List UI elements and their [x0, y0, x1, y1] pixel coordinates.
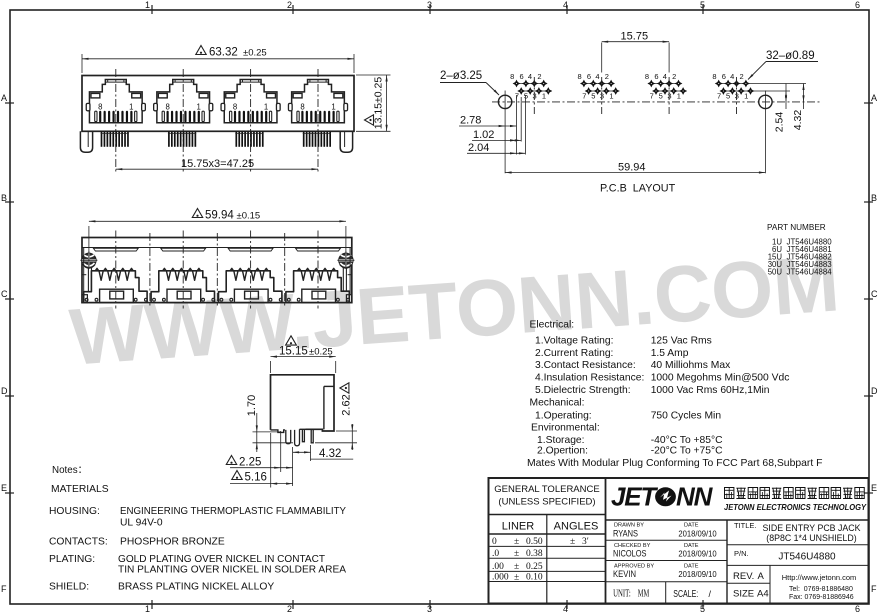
svg-text:(UNLESS SPECIFIED): (UNLESS SPECIFIED) — [498, 497, 595, 508]
svg-text:PHOSPHOR BRONZE: PHOSPHOR BRONZE — [120, 537, 225, 548]
svg-text:1: 1 — [129, 103, 133, 112]
svg-text:1.Voltage Rating:: 1.Voltage Rating: — [535, 335, 613, 346]
svg-text:SHIELD:: SHIELD: — [49, 582, 89, 593]
svg-text:ANGLES: ANGLES — [554, 521, 599, 533]
svg-text:7: 7 — [515, 91, 519, 100]
svg-text:59.94: 59.94 — [618, 161, 646, 173]
svg-text:C: C — [871, 289, 878, 299]
svg-text:SIZE: SIZE — [733, 589, 754, 600]
svg-text:6: 6 — [520, 72, 524, 81]
svg-text:A: A — [1, 93, 7, 103]
svg-text:Mechanical:: Mechanical: — [530, 398, 585, 409]
svg-text:8: 8 — [645, 72, 649, 81]
svg-text:Electrical:: Electrical: — [530, 320, 575, 331]
svg-text:PLATING:: PLATING: — [49, 554, 95, 565]
svg-text:5: 5 — [659, 91, 663, 100]
svg-text:RYANS: RYANS — [613, 528, 638, 538]
svg-text:0.50: 0.50 — [526, 537, 543, 547]
svg-text:3.Contact Resistance:: 3.Contact Resistance: — [535, 360, 636, 371]
svg-text:F: F — [1, 584, 7, 594]
svg-text:BRASS PLATING NICKEL ALLOY: BRASS PLATING NICKEL ALLOY — [118, 582, 274, 593]
svg-text:JT546U4884: JT546U4884 — [787, 268, 833, 277]
svg-text:±: ± — [514, 549, 519, 559]
svg-text:1: 1 — [197, 103, 201, 112]
svg-text:4.32: 4.32 — [792, 110, 804, 131]
svg-text:PART NUMBER: PART NUMBER — [767, 223, 826, 232]
svg-text:8: 8 — [578, 72, 582, 81]
svg-text:5.16: 5.16 — [245, 471, 267, 483]
svg-text:1: 1 — [145, 0, 150, 10]
svg-text:JET: JET — [611, 482, 658, 512]
svg-text:5: 5 — [726, 91, 730, 100]
svg-text:±: ± — [514, 537, 519, 547]
svg-text:59.94: 59.94 — [205, 209, 234, 221]
svg-text:8: 8 — [98, 103, 102, 112]
svg-text:ENGINEERING THERMOPLASTIC FLAM: ENGINEERING THERMOPLASTIC FLAMMABILITY — [120, 506, 346, 517]
svg-text:4: 4 — [663, 72, 667, 81]
svg-text:3′: 3′ — [582, 537, 589, 547]
svg-text:TIN PLANTING OVER NICKEL IN SO: TIN PLANTING OVER NICKEL IN SOLDER AREA — [118, 565, 346, 576]
svg-text:1000 Vac Rms 60Hz,1Min: 1000 Vac Rms 60Hz,1Min — [651, 385, 770, 396]
svg-text:4: 4 — [595, 72, 599, 81]
svg-text:Environmental:: Environmental: — [531, 423, 600, 434]
svg-text:2.Current Rating:: 2.Current Rating: — [535, 348, 613, 359]
svg-text:1: 1 — [609, 91, 613, 100]
svg-text:-20°C To +75°C: -20°C To +75°C — [651, 445, 723, 456]
svg-text:2: 2 — [287, 0, 292, 10]
svg-text:4.Insulation Resistance:: 4.Insulation Resistance: — [535, 373, 644, 384]
svg-text:2.04: 2.04 — [468, 142, 489, 154]
svg-text:7: 7 — [582, 91, 586, 100]
svg-text:D: D — [1, 386, 8, 396]
svg-text:2.Opertion:: 2.Opertion: — [537, 445, 588, 456]
svg-text:UL 94V-0: UL 94V-0 — [120, 518, 163, 529]
svg-text:2: 2 — [537, 72, 541, 81]
svg-text:1: 1 — [331, 103, 335, 112]
svg-text:5: 5 — [591, 91, 595, 100]
svg-text:P.C.B LAYOUT: P.C.B LAYOUT — [600, 182, 676, 194]
svg-text:JETONN ELECTRONICS TECHNOLOGY: JETONN ELECTRONICS TECHNOLOGY — [724, 503, 867, 512]
svg-text:1: 1 — [542, 91, 546, 100]
svg-text:1: 1 — [677, 91, 681, 100]
svg-text:HOUSING:: HOUSING: — [49, 506, 100, 517]
svg-text:Http://www.jetonn.com: Http://www.jetonn.com — [782, 573, 857, 582]
svg-text:P/N.: P/N. — [734, 549, 749, 558]
svg-text:A: A — [758, 571, 765, 582]
svg-text:LINER: LINER — [502, 521, 534, 533]
svg-text:40 Milliohms Max: 40 Milliohms Max — [651, 360, 731, 371]
svg-text:±0.25: ±0.25 — [243, 48, 267, 59]
svg-text:SIDE ENTRY PCB JACK: SIDE ENTRY PCB JACK — [763, 523, 861, 533]
svg-text:F: F — [871, 584, 877, 594]
svg-text:7: 7 — [650, 91, 654, 100]
svg-text:5: 5 — [524, 91, 528, 100]
svg-text:Mates With Modular Plug Confor: Mates With Modular Plug Conforming To FC… — [527, 458, 822, 469]
svg-text:±: ± — [514, 573, 519, 583]
svg-text:0.38: 0.38 — [526, 549, 543, 559]
svg-text:6: 6 — [654, 72, 658, 81]
svg-text:±0.15: ±0.15 — [237, 210, 261, 221]
svg-text:2: 2 — [605, 72, 609, 81]
svg-text:50U: 50U — [768, 268, 783, 277]
svg-text:4: 4 — [528, 72, 532, 81]
svg-text:2–ø3.25: 2–ø3.25 — [440, 70, 482, 82]
svg-text:KEVIN: KEVIN — [613, 569, 636, 579]
svg-text:6: 6 — [722, 72, 726, 81]
svg-text:2: 2 — [740, 72, 744, 81]
svg-text:GENERAL TOLERANCE: GENERAL TOLERANCE — [494, 484, 599, 495]
svg-text:4: 4 — [730, 72, 734, 81]
svg-text:8: 8 — [166, 103, 170, 112]
svg-text:NICOLOS: NICOLOS — [613, 549, 647, 559]
svg-text:32–ø0.89: 32–ø0.89 — [766, 50, 815, 62]
svg-text:1.5 Amp: 1.5 Amp — [651, 348, 689, 359]
svg-text:C: C — [1, 289, 8, 299]
svg-text:±: ± — [514, 562, 519, 572]
svg-text:GOLD PLATING OVER NICKEL IN CO: GOLD PLATING OVER NICKEL IN CONTACT — [118, 554, 326, 565]
svg-text:2018/09/10: 2018/09/10 — [678, 549, 716, 559]
svg-text:7: 7 — [717, 91, 721, 100]
svg-text:2018/09/10: 2018/09/10 — [678, 569, 716, 579]
svg-text:750 Cycles Min: 750 Cycles Min — [651, 410, 722, 421]
svg-text:1.02: 1.02 — [473, 129, 494, 141]
svg-text:8: 8 — [510, 72, 514, 81]
svg-text:2.25: 2.25 — [239, 456, 261, 468]
svg-text:A4: A4 — [757, 589, 769, 600]
svg-text:2.62: 2.62 — [341, 394, 353, 415]
svg-text:A: A — [871, 93, 877, 103]
svg-text:-40°C To +85°C: -40°C To +85°C — [651, 435, 723, 446]
svg-text:.0: .0 — [492, 549, 499, 559]
svg-text:13.15±0.25: 13.15±0.25 — [373, 77, 385, 130]
svg-text:1: 1 — [145, 604, 150, 613]
svg-text:125 Vac Rms: 125 Vac Rms — [651, 335, 712, 346]
svg-text:CONTACTS:: CONTACTS: — [49, 537, 108, 548]
svg-text:Tel: 0769-81886480: Tel: 0769-81886480 — [789, 586, 853, 593]
svg-text:JT546U4880: JT546U4880 — [778, 552, 836, 563]
svg-text:UNIT:: UNIT: — [613, 589, 631, 600]
svg-text:4.32: 4.32 — [319, 448, 341, 460]
svg-text:15.75: 15.75 — [621, 31, 649, 43]
svg-text:1000 Megohms Min@500 Vdc: 1000 Megohms Min@500 Vdc — [651, 373, 790, 384]
svg-text:/: / — [709, 589, 712, 599]
svg-text:±0.25: ±0.25 — [309, 347, 333, 358]
svg-text:2.54: 2.54 — [774, 112, 786, 133]
svg-text:D: D — [871, 386, 878, 396]
svg-text:REV.: REV. — [733, 571, 754, 582]
svg-text:15.15: 15.15 — [279, 346, 308, 358]
svg-text:8: 8 — [300, 103, 304, 112]
svg-text:15.75x3=47.25: 15.75x3=47.25 — [181, 158, 254, 170]
svg-text:MATERIALS: MATERIALS — [51, 484, 109, 495]
svg-text:Notes：: Notes： — [52, 465, 87, 476]
svg-text:5.Dielectric Strength:: 5.Dielectric Strength: — [535, 385, 631, 396]
svg-text:TITLE.: TITLE. — [734, 521, 757, 530]
svg-text:SCALE:: SCALE: — [673, 589, 698, 600]
svg-text:0: 0 — [492, 537, 497, 547]
svg-text:2: 2 — [287, 604, 292, 613]
svg-text:1.Operating:: 1.Operating: — [535, 410, 592, 421]
svg-text:1.70: 1.70 — [246, 395, 258, 416]
svg-text:E: E — [871, 483, 877, 493]
svg-text:2.78: 2.78 — [460, 115, 481, 127]
svg-text:63.32: 63.32 — [209, 47, 238, 59]
svg-text:±: ± — [570, 537, 575, 547]
svg-text:.000: .000 — [492, 573, 509, 583]
svg-text:MM: MM — [638, 589, 650, 600]
svg-text:8: 8 — [712, 72, 716, 81]
svg-text:8: 8 — [233, 103, 237, 112]
svg-text:1: 1 — [264, 103, 268, 112]
svg-text:2018/09/10: 2018/09/10 — [678, 528, 716, 538]
svg-text:.00: .00 — [492, 562, 504, 572]
svg-text:6: 6 — [587, 72, 591, 81]
svg-text:2: 2 — [672, 72, 676, 81]
svg-text:1.Storage:: 1.Storage: — [537, 435, 585, 446]
svg-text:6: 6 — [855, 604, 860, 613]
svg-text:0.25: 0.25 — [526, 562, 543, 572]
svg-text:1: 1 — [744, 91, 748, 100]
svg-text:6: 6 — [855, 0, 860, 10]
svg-text:0.10: 0.10 — [526, 573, 543, 583]
svg-text:Fax: 0769-81886946: Fax: 0769-81886946 — [789, 594, 854, 601]
svg-text:E: E — [1, 483, 7, 493]
svg-text:(8P8C 1*4 UNSHIELD): (8P8C 1*4 UNSHIELD) — [766, 533, 857, 543]
svg-text:NN: NN — [676, 482, 714, 512]
